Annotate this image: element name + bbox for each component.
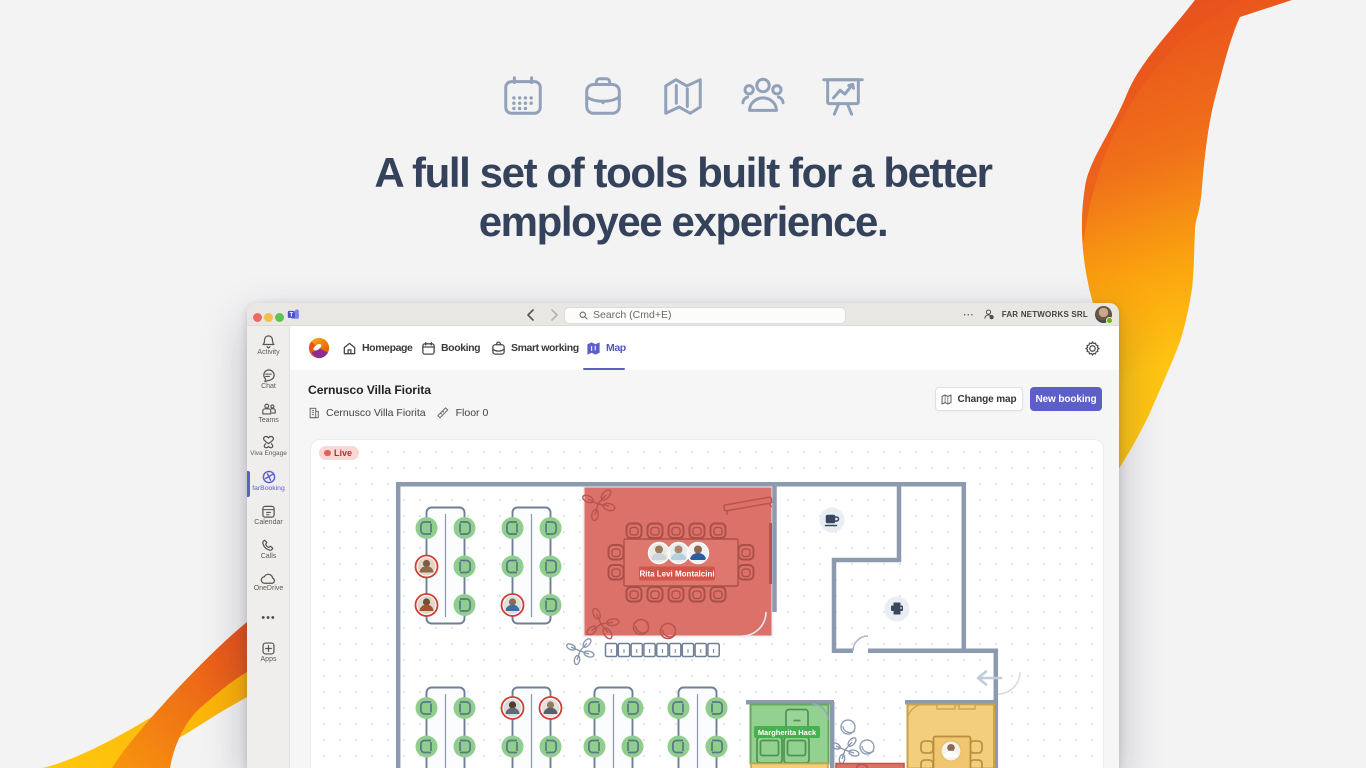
svg-text:Rita Levi Montalcini: Rita Levi Montalcini (639, 570, 714, 579)
svg-text:T: T (289, 311, 293, 318)
svg-text:Margherita Hack: Margherita Hack (758, 728, 817, 737)
